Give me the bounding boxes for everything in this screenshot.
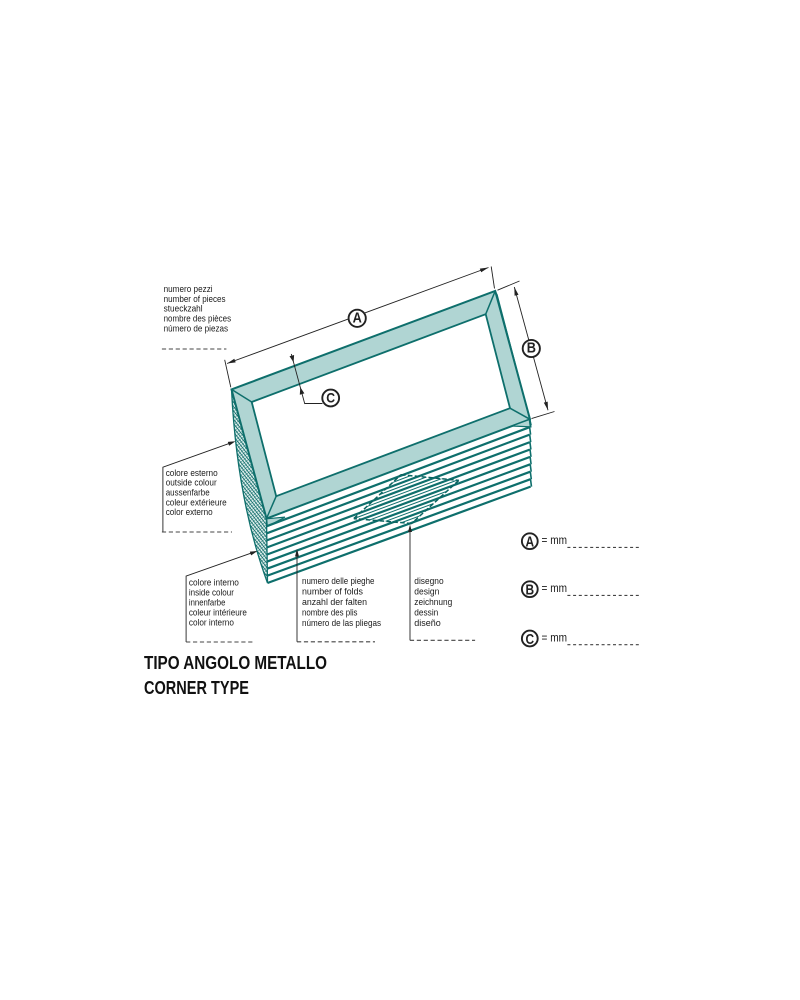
svg-text:color interno: color interno <box>189 617 234 628</box>
svg-text:A: A <box>526 534 535 551</box>
svg-text:TIPO ANGOLO METALLO: TIPO ANGOLO METALLO <box>144 652 327 673</box>
svg-text:CORNER TYPE: CORNER TYPE <box>144 677 249 698</box>
svg-text:A: A <box>353 310 362 327</box>
svg-text:= mm: = mm <box>542 581 568 595</box>
svg-text:diseño: diseño <box>414 618 441 629</box>
svg-text:= mm: = mm <box>542 533 568 547</box>
svg-text:anzahl der falten: anzahl der falten <box>302 597 367 608</box>
svg-text:C: C <box>326 390 335 406</box>
svg-text:zeichnung: zeichnung <box>414 597 452 608</box>
svg-text:B: B <box>526 582 535 599</box>
svg-text:B: B <box>527 340 536 357</box>
svg-text:número de las pliegas: número de las pliegas <box>302 618 381 629</box>
svg-text:disegno: disegno <box>414 576 443 587</box>
svg-text:dessin: dessin <box>414 607 438 618</box>
svg-text:number of folds: number of folds <box>302 587 363 598</box>
svg-text:C: C <box>526 631 535 648</box>
svg-text:nombre des plis: nombre des plis <box>302 607 358 618</box>
svg-text:número de piezas: número de piezas <box>164 323 229 334</box>
svg-text:design: design <box>414 587 439 598</box>
svg-text:= mm: = mm <box>542 630 568 644</box>
svg-text:color externo: color externo <box>166 507 213 518</box>
svg-text:numero delle pieghe: numero delle pieghe <box>302 576 375 587</box>
